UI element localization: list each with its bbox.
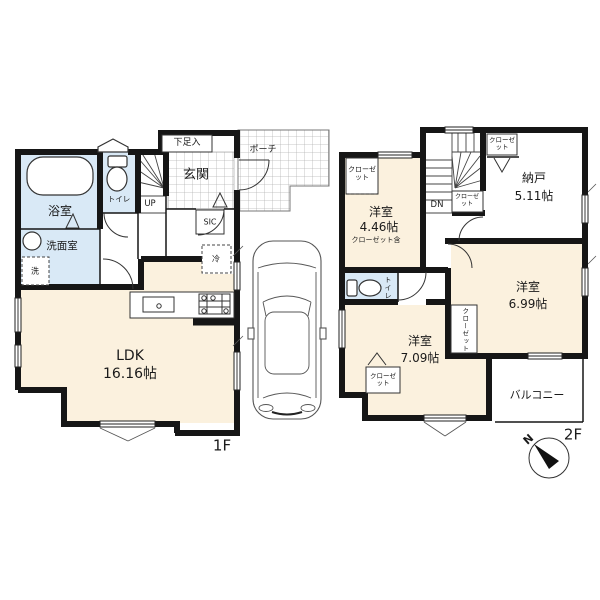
ldk-name-label: LDK (116, 348, 144, 364)
porch-tiles (238, 130, 329, 211)
bathroom-label: 浴室 (48, 205, 72, 219)
toilet-icon-1f (107, 156, 127, 191)
floorplan-canvas: 浴室 洗面室 トイレ 玄関 下足入 SIC ポーチ UP 冷 洗 LDK 16.… (0, 0, 600, 600)
bedroom446-name-label: 洋室 (369, 206, 393, 220)
bedroom709-name-label: 洋室 (408, 335, 432, 349)
bedroom446-note-label: クローゼット含 (352, 236, 401, 244)
closet-label-709: クローゼット (368, 373, 398, 387)
stairs-up-label: UP (144, 200, 155, 210)
bedroom709-size-label: 7.09帖 (401, 352, 440, 366)
bedroom699-size-label: 6.99帖 (509, 298, 548, 312)
bedroom446-size-label: 4.46帖 (360, 221, 399, 235)
floor1-label: 1F (213, 437, 231, 454)
storage-size-label: 5.11帖 (515, 190, 554, 204)
porch-label: ポーチ (249, 145, 276, 155)
compass-icon (529, 438, 569, 478)
closet-label-stairs: クローゼット (454, 194, 480, 207)
closet-label-446: クローゼット (347, 166, 377, 181)
stove-icon (199, 294, 230, 314)
fridge-label: 冷 (212, 254, 220, 263)
car-icon (248, 241, 326, 419)
balcony-label: バルコニー (510, 390, 565, 403)
sink-icon (23, 232, 41, 250)
shoe-cabinet-label: 下足入 (173, 138, 200, 148)
closet-door-mark-nando (494, 158, 510, 172)
stairs-down-label: DN (431, 201, 444, 211)
floor2-label: 2F (564, 426, 582, 443)
bay-window-icon (98, 139, 128, 152)
sic-label: SIC (203, 217, 216, 226)
washer-label: 洗 (31, 266, 39, 275)
toilet-icon-2f (347, 280, 381, 296)
toilet1f-label: トイレ (108, 196, 131, 205)
entrance-label: 玄関 (183, 169, 209, 184)
bathtub-icon (27, 157, 93, 195)
storage-name-label: 納戸 (522, 172, 546, 186)
washroom-label: 洗面室 (46, 240, 78, 252)
bedroom699-name-label: 洋室 (516, 281, 540, 295)
toilet2f-label: トイレ (384, 276, 392, 300)
closet-label-nando: クローゼット (488, 137, 516, 151)
closet-label-column: クローゼット (460, 308, 467, 353)
ldk-size-label: 16.16帖 (103, 366, 157, 382)
